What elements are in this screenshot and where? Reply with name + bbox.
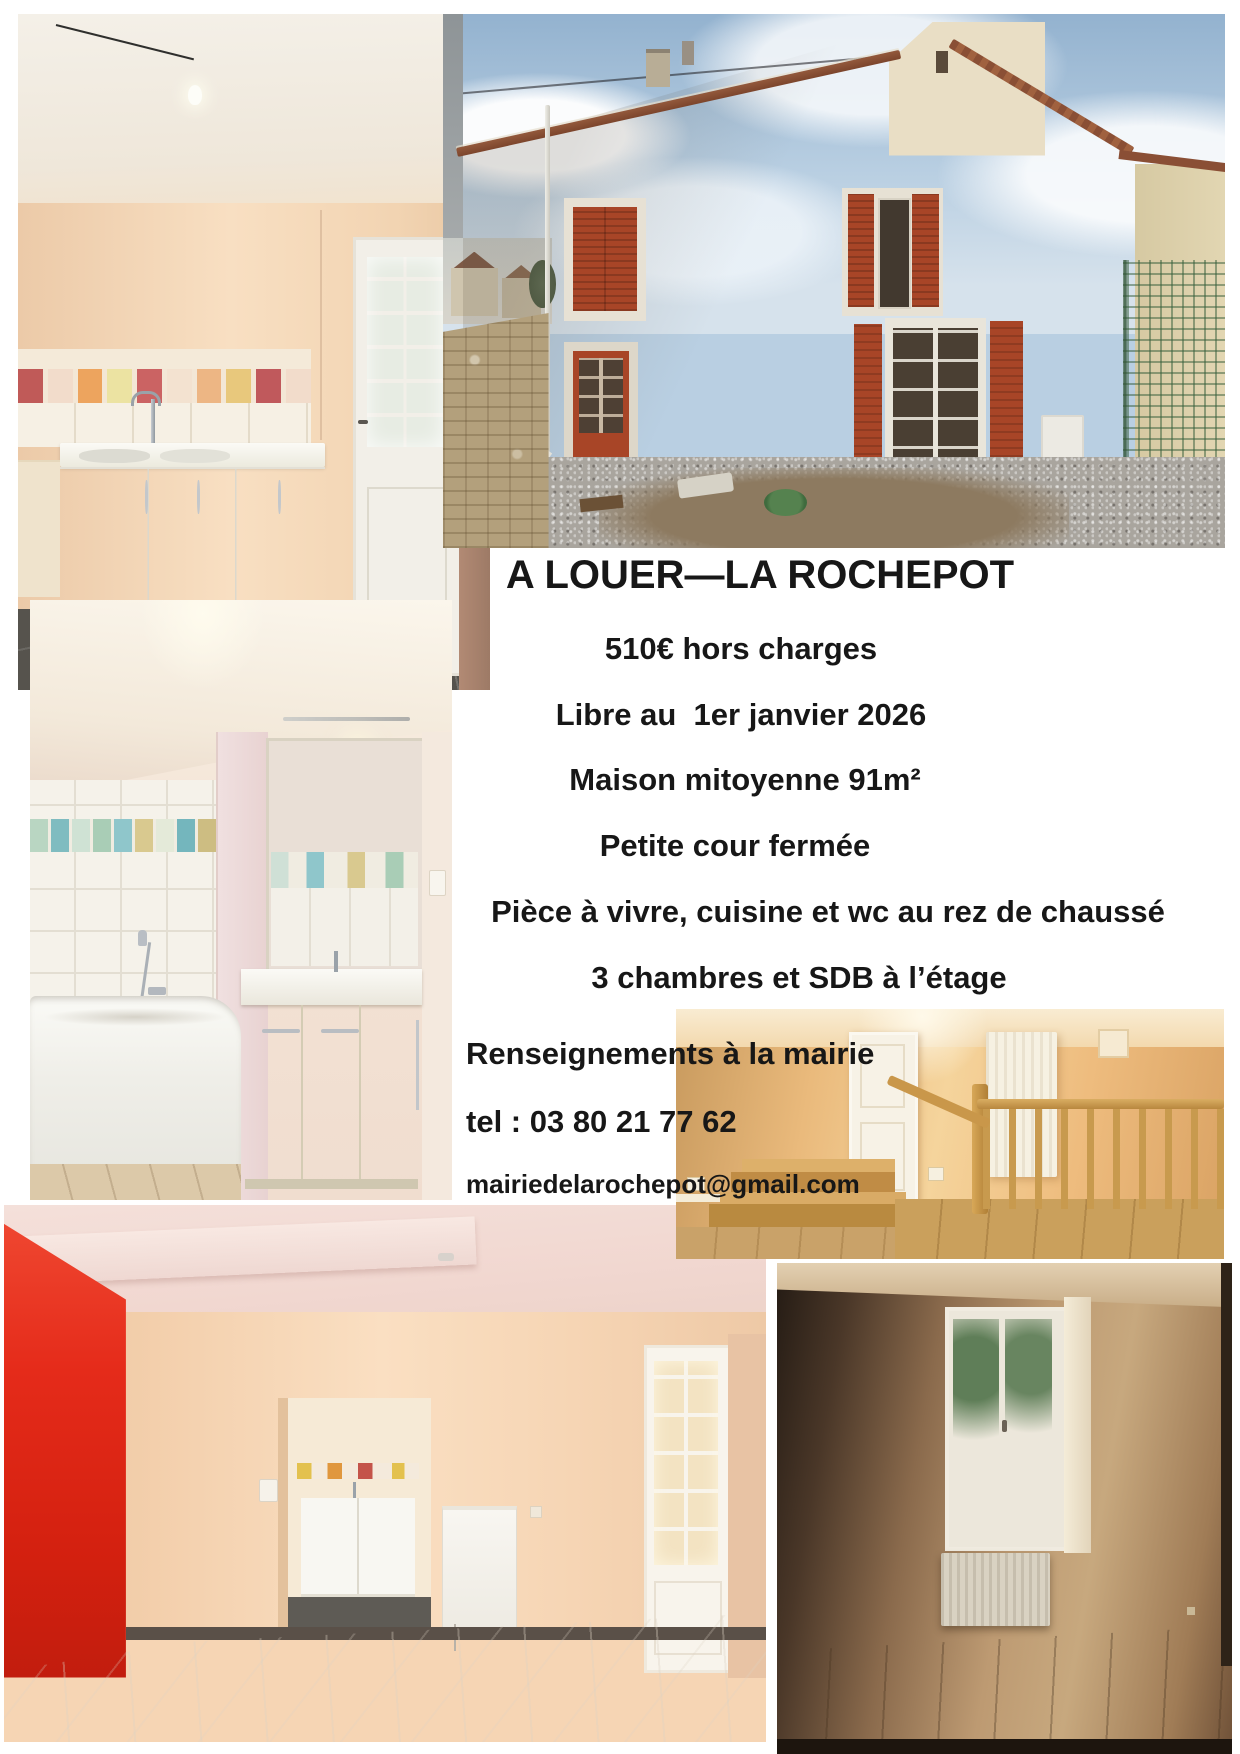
window-casement-right [1005,1319,1051,1525]
corner-unit [18,460,60,597]
laminate-floor [777,1626,1232,1739]
tile-band-squares [18,369,311,403]
ceiling-light-glow [140,600,267,690]
photo-bottom-strip [777,1739,1232,1754]
kitchen-ceiling [18,14,490,217]
pendant-bulb [188,85,202,105]
wall-socket [1187,1607,1195,1615]
contact-phone: tel : 03 80 21 77 62 [466,1104,737,1140]
neighbor-building-edge [443,14,463,260]
door-glazing [367,257,443,446]
contact-email: mairiedelarochepot@gmail.com [466,1170,860,1200]
stone-wall [443,313,549,548]
window-reveal [1064,1297,1091,1552]
opening-cabinet [301,1498,415,1600]
tile-band-top [18,349,311,369]
dirt-patch [599,468,1068,548]
window-handle [1002,1420,1007,1432]
switch-box [259,1479,278,1502]
pastel-tile [51,819,69,852]
bedroom-photo [777,1263,1232,1754]
basin-tap [334,951,338,972]
stair-riser [709,1204,906,1227]
bathroom-right-wall [422,732,452,1200]
open-shutter-right [912,194,939,306]
tile-square [78,369,103,403]
door-handle [358,420,368,424]
vanity-counter [241,969,422,1005]
window-casement-left [953,1319,999,1525]
mirror-reflection-tiles [271,888,419,966]
pastel-tile [30,819,48,852]
wall-socket [530,1506,542,1518]
kitchen-wall-corner [320,210,322,440]
ceiling-vent [1098,1029,1129,1058]
tile-square [48,369,73,403]
pastel-tile [93,819,111,852]
faucet-arc [131,391,161,406]
faucet-body [151,399,155,446]
detail-ground-floor: Pièce à vivre, cuisine et wc au rez de c… [491,894,1165,930]
towel-bar [416,1020,419,1110]
wall-outlet [928,1167,944,1182]
sink-cabinet [60,467,324,619]
tile-square [167,369,192,403]
bedroom-radiator [941,1553,1050,1627]
banister-rail [977,1099,1224,1109]
shower-handset [138,930,147,946]
chimney [682,41,695,65]
kitchen-photo [18,14,490,690]
bathroom-floor [30,1164,241,1200]
opening-tile-band [297,1463,419,1479]
detail-availability: Libre au 1er janvier 2026 [556,697,927,733]
manhole-cover [764,489,807,516]
mirror-reflection-band [271,852,419,888]
rental-flyer-page: A LOUER—LA ROCHEPOT 510€ hors charges Li… [0,0,1240,1754]
detail-surface: Maison mitoyenne 91m² [569,762,920,798]
ceiling-spotlight [438,1253,454,1261]
front-door-glazing [579,358,623,433]
house-exterior-photo [443,14,1225,548]
detail-upstairs: 3 chambres et SDB à l’étage [591,960,1006,996]
closed-red-shutters [573,207,637,311]
contact-info-line: Renseignements à la mairie [466,1036,874,1072]
detail-price: 510€ hors charges [605,631,877,667]
window-glass [878,198,912,309]
pastel-tile [72,819,90,852]
pastel-tile [156,819,174,852]
sink-bowl-left [79,449,150,463]
flyer-title: A LOUER—LA ROCHEPOT [506,552,1014,598]
pastel-tile [114,819,132,852]
tile-square [18,369,43,403]
chimney [646,49,669,88]
tile-square [197,369,222,403]
pastel-tile [198,819,216,852]
tile-square [107,369,132,403]
opening-faucet [353,1482,356,1498]
tile-square [256,369,281,403]
door-frame-edge [1221,1263,1232,1666]
pastel-tile-band [30,819,216,852]
banister-spindles [983,1109,1224,1209]
living-radiator [442,1506,516,1629]
cabinet-handle [278,480,281,514]
wood-floor-lower [676,1227,895,1260]
sink-bowl-right [160,449,231,463]
pastel-tile [177,819,195,852]
bath-mixer-spout [148,987,166,995]
strip-light [283,717,410,721]
vanity-handle [262,1029,300,1033]
backsplash-tiles [18,403,311,447]
bathroom-photo [30,600,452,1200]
bathtub-inner-shadow [43,1008,229,1026]
open-shutter-left [848,194,874,306]
light-switch [429,870,446,896]
pastel-tile [135,819,153,852]
door-panes [654,1361,718,1565]
tile-square [226,369,251,403]
detail-courtyard: Petite cour fermée [600,828,871,864]
tile-square [286,369,311,403]
vanity-handle [321,1029,359,1033]
bedroom-ceiling [777,1263,1232,1307]
living-room-photo [4,1205,766,1742]
